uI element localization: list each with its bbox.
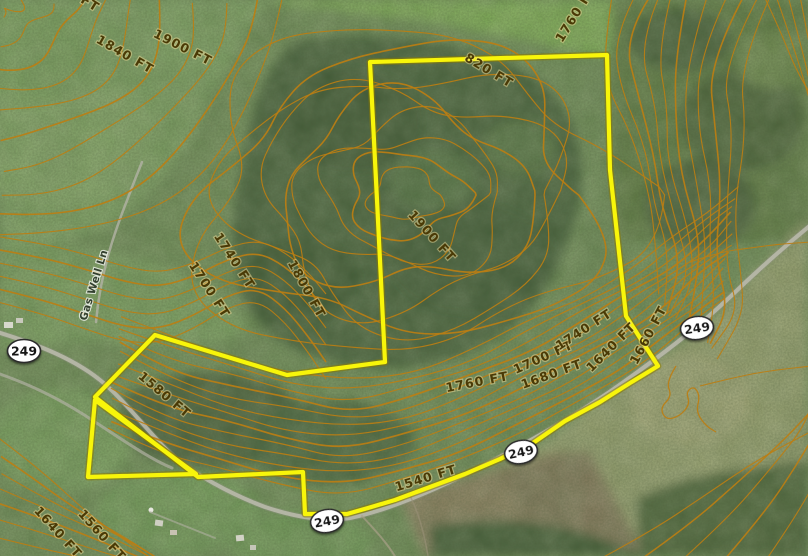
map-canvas[interactable]: FT1840 FT1900 FT1760 FT820 FT1900 FT1800… — [0, 0, 808, 556]
route-shield-number: 249 — [11, 344, 37, 359]
route-shield: 249 — [8, 340, 41, 363]
